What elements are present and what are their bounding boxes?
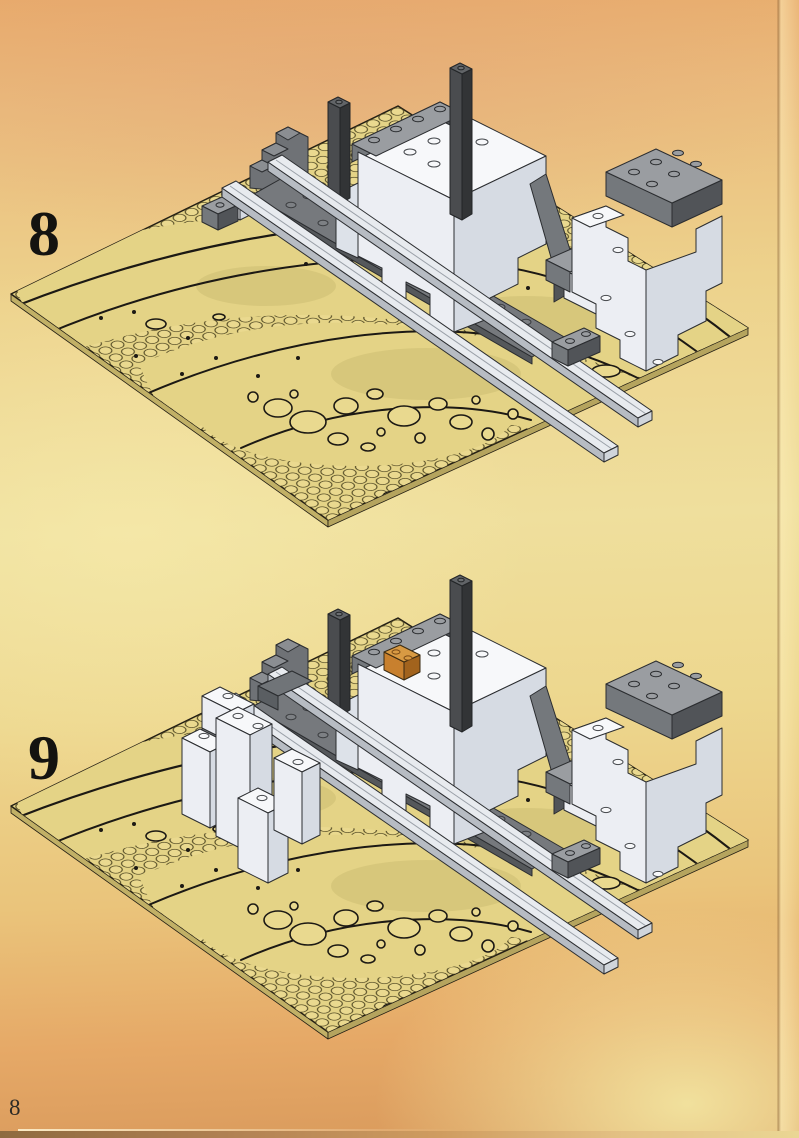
step-9-illustration — [6, 568, 792, 1052]
instruction-page: 8 9 8 — [0, 0, 799, 1138]
bottom-edge-shadow — [0, 1131, 799, 1138]
page-edge-shadow — [777, 0, 799, 1138]
page-number: 8 — [9, 1096, 21, 1119]
step-8-illustration — [6, 56, 792, 540]
